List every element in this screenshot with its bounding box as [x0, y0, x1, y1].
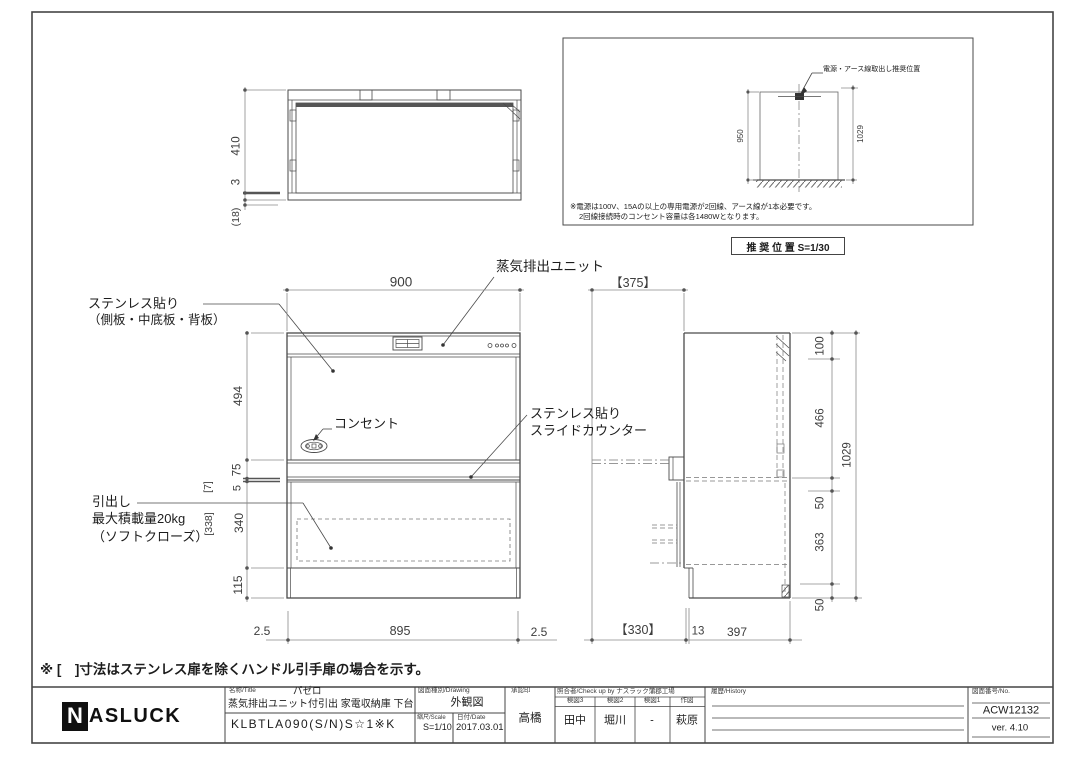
- label-slide-counter-1: ステンレス貼り: [530, 407, 621, 420]
- label-slide-counter-2: スライドカウンター: [530, 424, 647, 437]
- dim-front-2-5-left: 2.5: [254, 625, 271, 637]
- check-name-draw: 萩原: [676, 716, 698, 727]
- label-stainless-panels-1: ステンレス貼り: [88, 297, 179, 310]
- dim-front-338-bracket: [338]: [204, 512, 215, 535]
- nasluck-logo-text: ASLUCK: [88, 705, 181, 728]
- dim-plan-410: 410: [231, 136, 243, 155]
- drawing-version: ver. 4.10: [992, 723, 1028, 733]
- label-power-earth-outlet-position: 電源・アース線取出し推奨位置: [823, 66, 920, 73]
- check-up-header: 照合者/Check up by ナスラック蒲郡工場: [557, 689, 675, 696]
- dim-rec-950: 950: [737, 129, 745, 142]
- dim-side-397: 397: [727, 626, 747, 638]
- dim-front-2-5-right: 2.5: [531, 626, 548, 638]
- dim-side-363: 363: [815, 532, 827, 551]
- label-drawer-1: 引出し: [92, 495, 131, 508]
- drawing-number-header: 図面番号/No.: [972, 689, 1010, 696]
- drawing-linework: [0, 0, 1080, 764]
- dim-rec-1029: 1029: [857, 125, 865, 143]
- date-value: 2017.03.01: [456, 723, 504, 733]
- check-name-1: -: [650, 716, 654, 727]
- dim-plan-18: (18): [231, 208, 242, 227]
- nasluck-logo: N ASLUCK: [62, 702, 181, 731]
- approval-name: 高橋: [519, 713, 542, 725]
- recommended-position-caption-text: 推 奨 位 置 S=1/30: [746, 239, 829, 254]
- dim-front-900: 900: [390, 275, 413, 289]
- history-header: 履歴/History: [711, 689, 746, 696]
- dim-front-340: 340: [233, 513, 245, 533]
- dim-plan-3: 3: [231, 179, 243, 185]
- drawing-type-header: 図面種別/Drawing: [418, 688, 470, 695]
- drawing-type-value: 外観図: [451, 698, 484, 709]
- approval-header: 承認印: [511, 688, 531, 695]
- side-view: [592, 333, 790, 598]
- dim-side-100: 100: [815, 336, 827, 355]
- dim-front-494: 494: [232, 386, 244, 406]
- label-outlet: コンセント: [334, 417, 399, 430]
- check-col-2: 検図2: [607, 698, 624, 705]
- name-title-header: 名称/Title: [229, 688, 256, 695]
- dim-front-5: 5: [233, 485, 244, 491]
- dim-side-50-lower: 50: [815, 599, 827, 612]
- dim-front-895: 895: [390, 625, 411, 638]
- scale-value: S=1/10: [423, 723, 452, 732]
- plan-dims: [243, 87, 286, 210]
- check-col-draw: 作図: [681, 698, 694, 705]
- nasluck-logo-n: N: [62, 702, 88, 731]
- scale-header: 縮尺/Scale: [417, 715, 446, 721]
- dim-side-50-upper: 50: [815, 497, 827, 510]
- front-dims: [243, 288, 557, 644]
- plan-view: [288, 90, 521, 200]
- front-view: [287, 333, 520, 598]
- dim-side-375: 【375】: [610, 277, 656, 290]
- power-note-line2: 2回線接続時のコンセント容量は各1480Wとなります。: [579, 213, 763, 221]
- drawing-number-value: ACW12132: [983, 706, 1039, 717]
- label-stainless-panels-2: （側板・中底板・背板）: [88, 314, 226, 327]
- label-steam-exhaust-unit: 蒸気排出ユニット: [496, 260, 604, 274]
- dim-front-115: 115: [232, 575, 244, 594]
- dim-front-75: 75: [232, 464, 244, 477]
- power-note-line1: ※電源は100V、15Aの以上の専用電源が2回線、アース線が1本必要です。: [570, 203, 816, 211]
- label-drawer-2: 最大積載量20kg: [92, 512, 185, 525]
- check-name-3: 田中: [564, 716, 586, 727]
- series-name: パゼロ: [293, 687, 322, 697]
- dim-side-330: 【330】: [615, 624, 661, 637]
- dim-front-7-bracket: [7]: [203, 481, 214, 493]
- product-name: 蒸気排出ユニット付引出 家電収納庫 下台: [228, 700, 414, 710]
- dim-side-13: 13: [692, 626, 705, 638]
- recommended-position-caption: 推 奨 位 置 S=1/30: [731, 237, 845, 255]
- dim-side-1029: 1029: [842, 442, 854, 468]
- date-header: 日付/Date: [457, 715, 486, 722]
- model-number: KLBTLA090(S/N)S☆1※K: [231, 718, 396, 730]
- label-drawer-3: （ソフトクローズ）: [92, 530, 208, 543]
- check-col-3: 検図3: [567, 698, 584, 705]
- check-col-1: 検図1: [644, 698, 661, 705]
- drawing-sheet: 410 3 (18) 電源・アース線取出し推奨位置 950 1029 ※電源は1…: [0, 0, 1080, 764]
- bracket-dimension-note: ※ [ ]寸法はステンレス扉を除くハンドル引手扉の場合を示す。: [40, 663, 429, 677]
- check-name-2: 堀川: [604, 716, 626, 727]
- dim-side-466: 466: [815, 408, 827, 427]
